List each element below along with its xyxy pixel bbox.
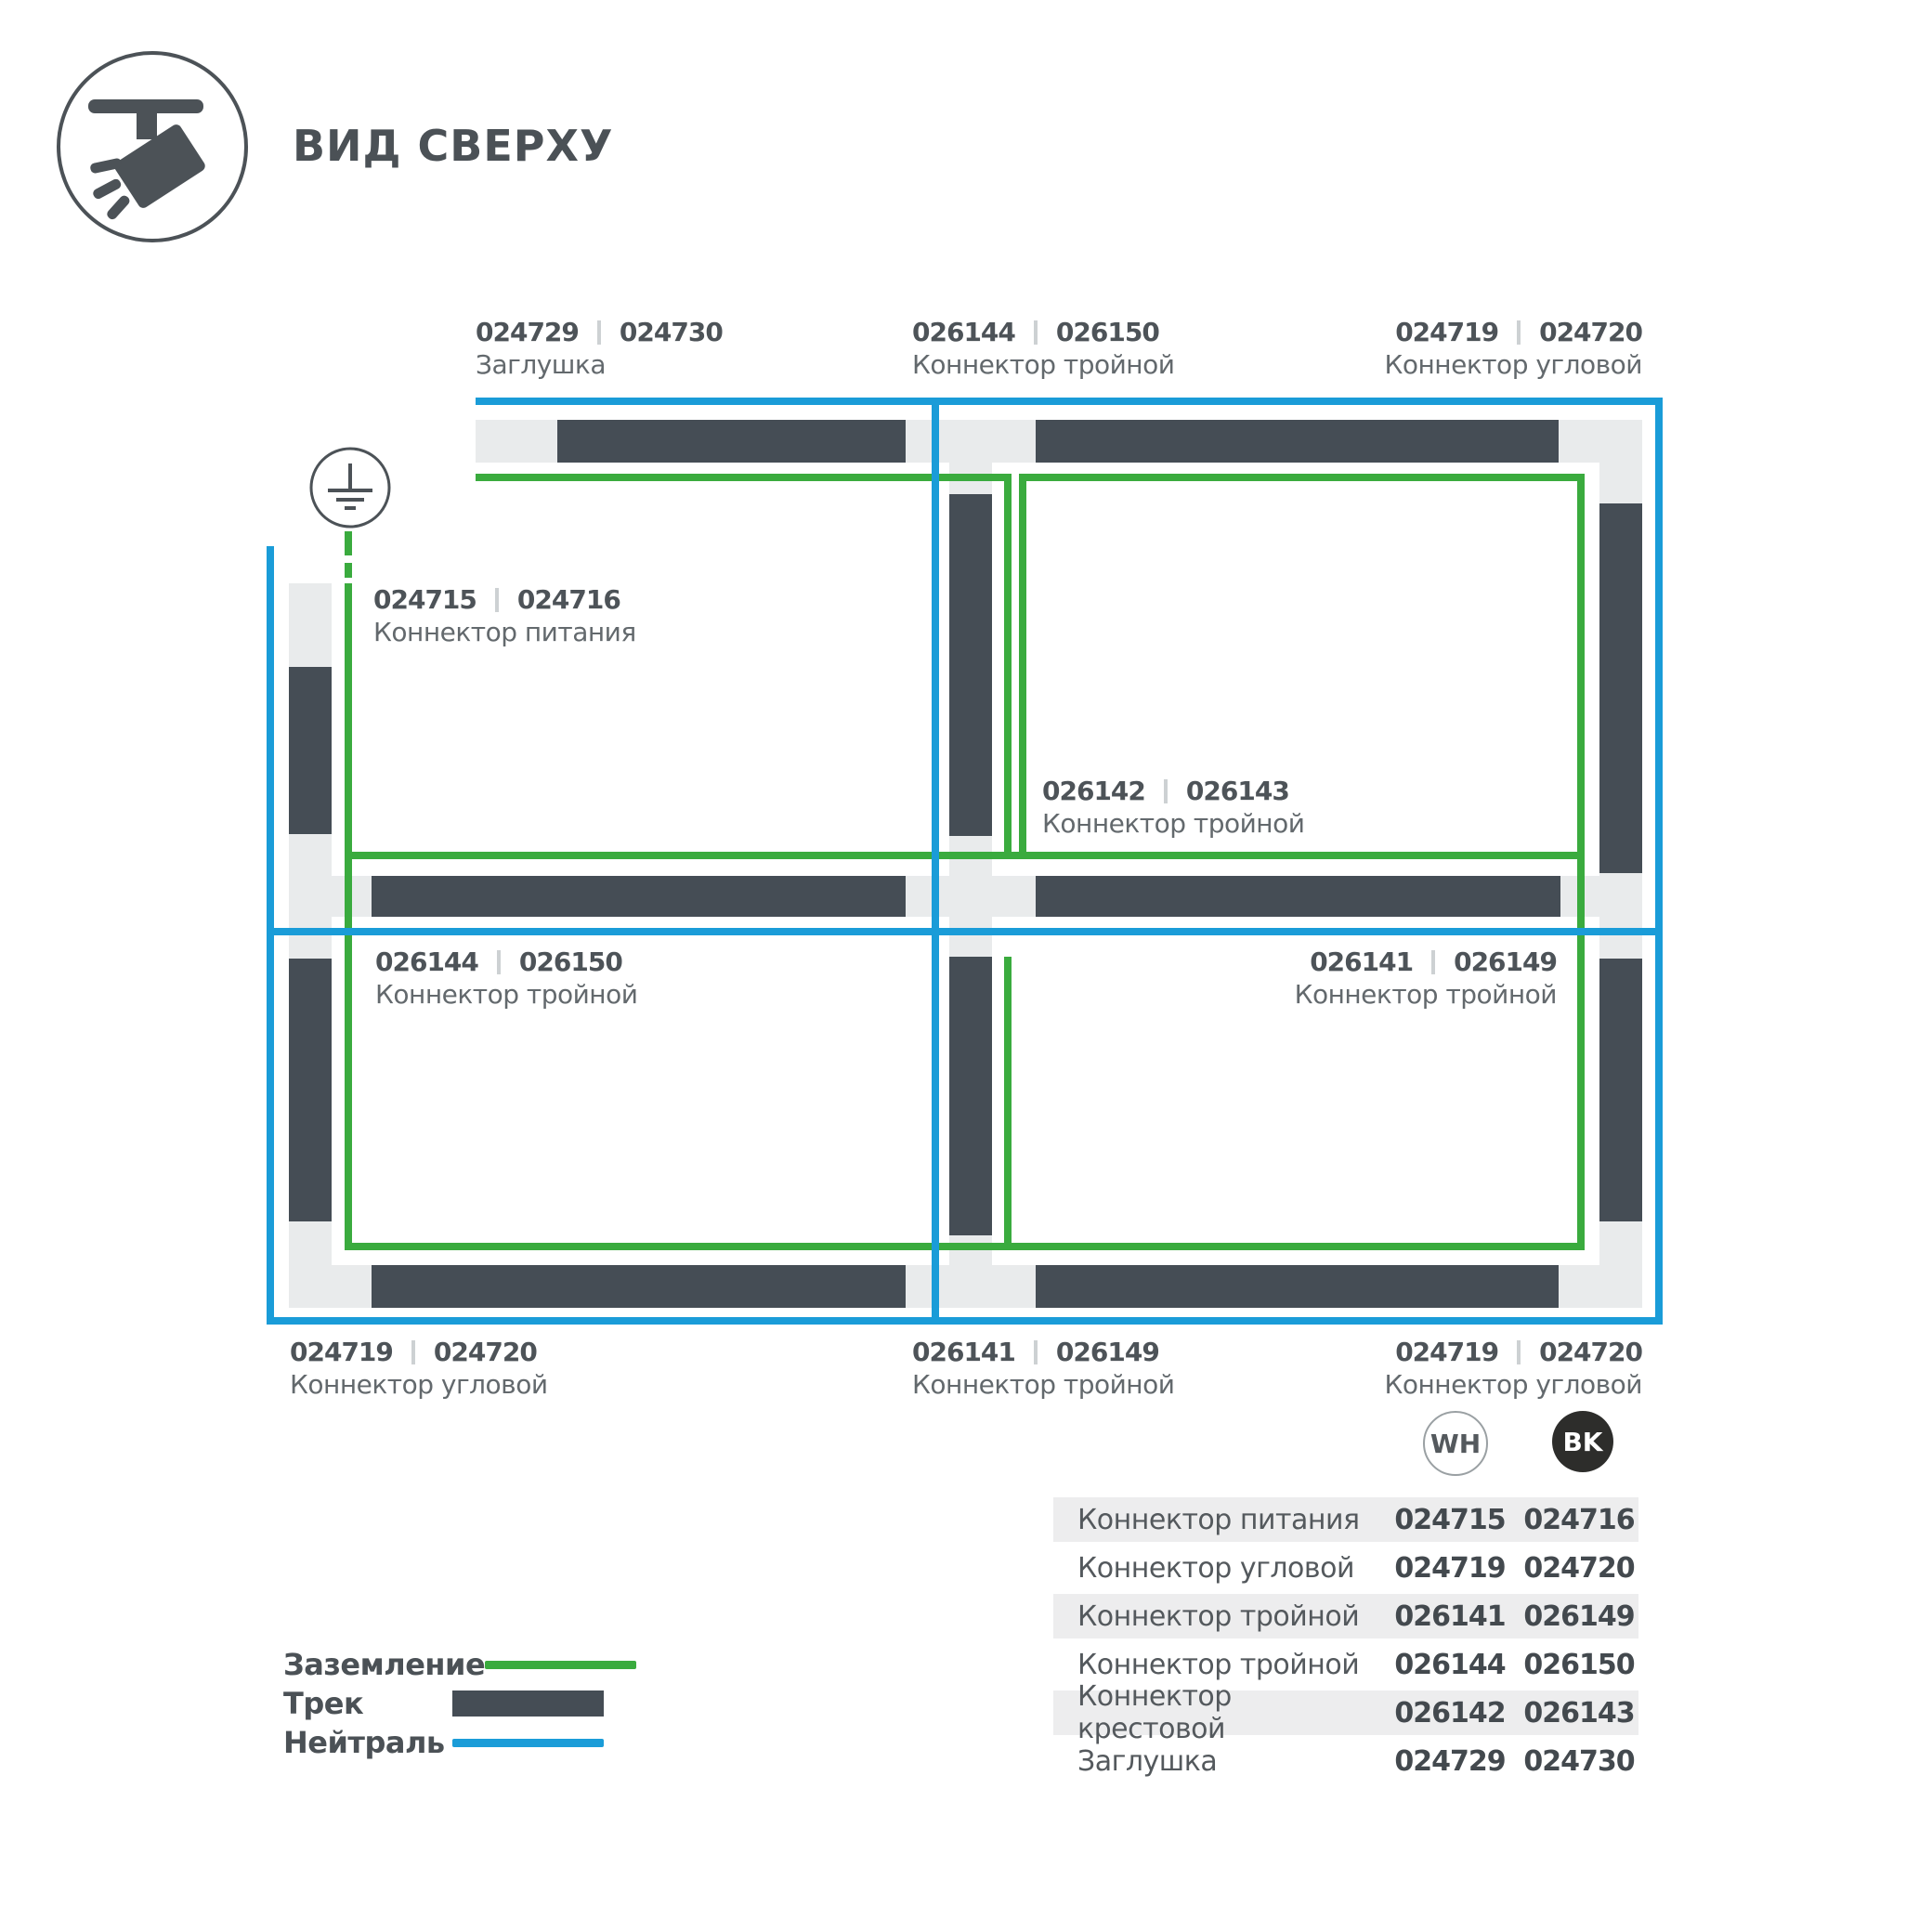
track-segment-mid-v-1 [949,494,992,836]
article-numbers: 024719024720 [1384,318,1642,347]
connector-corner-tr-v [1599,420,1642,503]
track-segment-mid-v-2 [949,957,992,1235]
article-numbers: 026142026143 [1042,777,1304,806]
track-segment-left-1 [289,667,332,834]
track-bar-swatch [452,1690,604,1717]
label-endcap: 024729024730 Заглушка [476,318,723,381]
part-name: Коннектор угловой [1384,1369,1642,1401]
connector-t-bottom-stem [949,1235,992,1265]
part-name: Коннектор угловой [290,1369,548,1401]
ground-line-tl-right-v [1004,474,1012,859]
legend-label: Трек [283,1686,363,1721]
track-segment-right-2 [1599,959,1642,1221]
bk-article-cell: 024716 [1520,1504,1638,1536]
bk-article-cell: 026149 [1520,1600,1638,1633]
part-name: Заглушка [476,349,723,381]
ground-line-mid-h [345,852,1585,859]
track-segment-top-1 [557,420,906,463]
neutral-line-mid-v [932,398,939,1325]
label-t-connector-top: 026144026150 Коннектор тройной [912,318,1174,381]
wh-article-cell: 026142 [1380,1697,1520,1730]
article-numbers: 026144026150 [375,947,637,977]
separator [1164,779,1168,803]
connector-t-right-block [1599,873,1642,959]
earth-ground-icon [307,445,395,532]
part-name-cell: Заглушка [1053,1745,1380,1778]
legend-item-ground: Заземление [283,1646,604,1683]
part-name: Коннектор тройной [1295,979,1557,1011]
track-segment-mid-h-2 [1036,876,1560,917]
separator [495,588,499,612]
connector-t-top-block [906,420,1036,463]
separator [411,1340,415,1364]
connector-endcap-block [476,420,557,463]
neutral-line-bottom-h [267,1317,1663,1325]
neutral-line-mid-h [267,928,1663,935]
track-spotlight-icon [54,48,251,245]
bk-article-cell: 024730 [1520,1745,1638,1778]
separator [1034,1340,1038,1364]
neutral-line-right-v [1655,398,1663,1325]
part-name-cell: Коннектор питания [1053,1504,1380,1536]
ground-line-dash-1 [345,531,352,555]
connector-t-bottom-block [906,1265,1036,1308]
track-segment-left-2 [289,959,332,1221]
part-name: Коннектор тройной [1042,808,1304,840]
neutral-line-top-h [476,398,1663,405]
ground-line-bottom-h [345,1243,1585,1250]
connector-corner-bl-h [289,1265,372,1308]
label-cross-connector: 026142026143 Коннектор тройной [1042,777,1304,840]
ground-line-tr-left-v [1019,474,1026,859]
neutral-line-left-v [267,546,274,1325]
article-numbers: 026144026150 [912,318,1174,347]
legend-item-neutral: Нейтраль [283,1724,604,1761]
article-numbers: 026141026149 [912,1338,1174,1367]
part-name-cell: Коннектор тройной [1053,1600,1380,1633]
track-segment-bottom-1 [372,1265,906,1308]
neutral-line-swatch [452,1739,604,1747]
track-segment-bottom-2 [1036,1265,1559,1308]
table-row: Заглушка 024729 024730 [1053,1739,1638,1783]
wh-article-cell: 024729 [1380,1745,1520,1778]
article-numbers: 026141026149 [1295,947,1557,977]
wh-article-cell: 026144 [1380,1649,1520,1681]
table-row: Коннектор тройной 026141 026149 [1053,1594,1638,1638]
ground-line-dash-2 [345,563,352,578]
track-segment-mid-h-1 [372,876,906,917]
separator [1034,320,1038,345]
part-name: Коннектор тройной [912,1369,1174,1401]
separator [1517,320,1521,345]
article-numbers: 024729024730 [476,318,723,347]
part-name: Коннектор тройной [912,349,1174,381]
part-name-cell: Коннектор крестовой [1053,1680,1380,1745]
label-corner-bottom-right: 024719024720 Коннектор угловой [1384,1338,1642,1401]
legend-label: Заземление [283,1647,485,1682]
legend-label: Нейтраль [283,1725,445,1760]
track-segment-top-2 [1036,420,1559,463]
separator [597,320,601,345]
wh-article-cell: 026141 [1380,1600,1520,1633]
label-corner-bottom-left: 024719024720 Коннектор угловой [290,1338,548,1401]
bk-article-cell: 026150 [1520,1649,1638,1681]
ground-line-top-h-right [1019,474,1585,481]
separator [497,950,501,974]
connector-power-block [289,583,332,667]
separator [1431,950,1435,974]
part-name-cell: Коннектор тройной [1053,1649,1380,1681]
part-name: Коннектор питания [373,617,636,648]
label-t-connector-bottom: 026141026149 Коннектор тройной [912,1338,1174,1401]
track-segment-right-1 [1599,503,1642,873]
part-name: Коннектор угловой [1384,349,1642,381]
label-corner-top-right: 024719024720 Коннектор угловой [1384,318,1642,381]
ground-line-bottom-mid-v [1004,957,1012,1250]
table-row: Коннектор питания 024715 024716 [1053,1497,1638,1542]
ground-line-left-v [345,583,352,1250]
color-badge-black: BK [1552,1411,1613,1472]
page-title: ВИД СВЕРХУ [293,121,613,171]
connector-corner-br-v [1599,1221,1642,1308]
label-t-connector-mid-right: 026141026149 Коннектор тройной [1295,947,1557,1011]
wh-article-cell: 024719 [1380,1552,1520,1585]
bk-article-cell: 026143 [1520,1697,1638,1730]
connector-t-left-block [289,834,332,959]
separator [1517,1340,1521,1364]
color-badge-white: WH [1423,1411,1488,1476]
part-name: Коннектор тройной [375,979,637,1011]
article-numbers: 024719024720 [1384,1338,1642,1367]
ground-line-swatch [485,1661,636,1669]
article-numbers: 024719024720 [290,1338,548,1367]
ground-line-right-v [1577,474,1585,1250]
label-power-connector: 024715024716 Коннектор питания [373,585,636,648]
bk-article-cell: 024720 [1520,1552,1638,1585]
wh-article-cell: 024715 [1380,1504,1520,1536]
legend-item-track: Трек [283,1685,604,1722]
table-row: Коннектор крестовой 026142 026143 [1053,1690,1638,1735]
label-t-connector-mid-left: 026144026150 Коннектор тройной [375,947,637,1011]
table-row: Коннектор угловой 024719 024720 [1053,1546,1638,1590]
article-numbers: 024715024716 [373,585,636,615]
part-name-cell: Коннектор угловой [1053,1552,1380,1585]
